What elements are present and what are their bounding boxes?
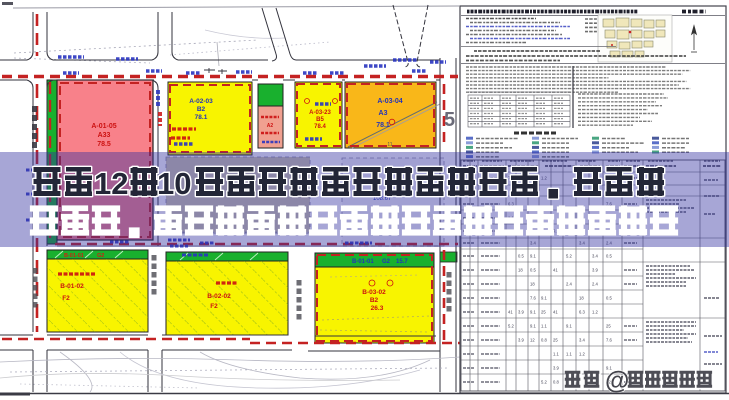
svg-text:78.1: 78.1 [195, 114, 208, 121]
svg-text:B-02-02: B-02-02 [207, 293, 231, 300]
svg-text:G2: G2 [382, 259, 391, 265]
svg-text:@: @ [605, 367, 629, 395]
svg-text:1.2: 1.2 [579, 352, 585, 357]
svg-text:5.2: 5.2 [508, 324, 514, 329]
svg-text:78.4: 78.4 [314, 124, 326, 130]
svg-text:3.9: 3.9 [518, 338, 524, 343]
svg-text:78.5: 78.5 [97, 141, 111, 148]
svg-text:A33: A33 [98, 132, 111, 139]
svg-text:78.1: 78.1 [376, 122, 390, 129]
svg-text:F2: F2 [62, 295, 70, 302]
svg-text:1.1: 1.1 [566, 352, 572, 357]
svg-text:0.8: 0.8 [553, 380, 559, 385]
svg-text:2.4: 2.4 [566, 282, 572, 287]
svg-text:A-02-03: A-02-03 [189, 98, 213, 105]
svg-text:0.5: 0.5 [530, 268, 536, 273]
svg-text:1.1: 1.1 [541, 324, 547, 329]
svg-text:18: 18 [518, 268, 523, 273]
svg-text:9.1: 9.1 [530, 310, 536, 315]
svg-text:B-01-01: B-01-01 [64, 253, 84, 259]
svg-text:25: 25 [541, 310, 546, 315]
svg-text:G2: G2 [97, 253, 104, 259]
svg-text:0.8: 0.8 [541, 338, 547, 343]
svg-text:9.1: 9.1 [530, 254, 536, 259]
svg-text:7.6: 7.6 [606, 338, 612, 343]
svg-text:3.9: 3.9 [592, 268, 598, 273]
svg-text:A3: A3 [379, 110, 388, 117]
svg-text:A-01-05: A-01-05 [91, 123, 116, 130]
svg-text:0.5: 0.5 [606, 296, 612, 301]
svg-text:10: 10 [157, 166, 191, 201]
svg-text:18: 18 [530, 282, 535, 287]
svg-text:A-03-04: A-03-04 [377, 98, 402, 105]
svg-text:25: 25 [606, 324, 611, 329]
svg-text:6.3: 6.3 [579, 310, 585, 315]
svg-text:7.6: 7.6 [530, 296, 536, 301]
svg-text:26.3: 26.3 [371, 305, 384, 312]
svg-text:5.2: 5.2 [541, 380, 547, 385]
svg-text:9.1: 9.1 [566, 324, 572, 329]
svg-text:9.1: 9.1 [541, 296, 547, 301]
svg-text:25: 25 [553, 338, 558, 343]
svg-text:12: 12 [94, 166, 128, 201]
svg-text:12: 12 [530, 338, 535, 343]
svg-text:41: 41 [553, 268, 558, 273]
svg-text:41: 41 [553, 310, 558, 315]
svg-text:18: 18 [579, 296, 584, 301]
svg-text:9.1: 9.1 [530, 324, 536, 329]
svg-text:B-01-01: B-01-01 [352, 259, 374, 265]
svg-text:F2: F2 [210, 303, 218, 310]
svg-text:3.4: 3.4 [579, 338, 585, 343]
svg-text:B-03-02: B-03-02 [362, 289, 386, 296]
svg-text:41: 41 [508, 310, 513, 315]
svg-text:0.5: 0.5 [518, 254, 524, 259]
svg-text:A2: A2 [267, 123, 274, 129]
svg-text:1.1: 1.1 [553, 352, 559, 357]
svg-text:3.9: 3.9 [553, 366, 559, 371]
svg-text:15.7: 15.7 [396, 259, 408, 265]
svg-text:1.2: 1.2 [592, 310, 598, 315]
svg-text:3.9: 3.9 [518, 310, 524, 315]
svg-text:5: 5 [444, 109, 455, 131]
svg-text:B2: B2 [197, 106, 206, 113]
svg-text:B-01-02: B-01-02 [60, 283, 84, 290]
svg-text:11: 11 [387, 142, 392, 148]
svg-text:0.5: 0.5 [606, 254, 612, 259]
svg-text:B5: B5 [316, 117, 324, 123]
svg-text:2.4: 2.4 [592, 282, 598, 287]
svg-text:5.2: 5.2 [566, 254, 572, 259]
svg-text:A-03-23: A-03-23 [309, 110, 331, 116]
svg-text:B2: B2 [370, 297, 379, 304]
svg-text:3.4: 3.4 [592, 254, 598, 259]
